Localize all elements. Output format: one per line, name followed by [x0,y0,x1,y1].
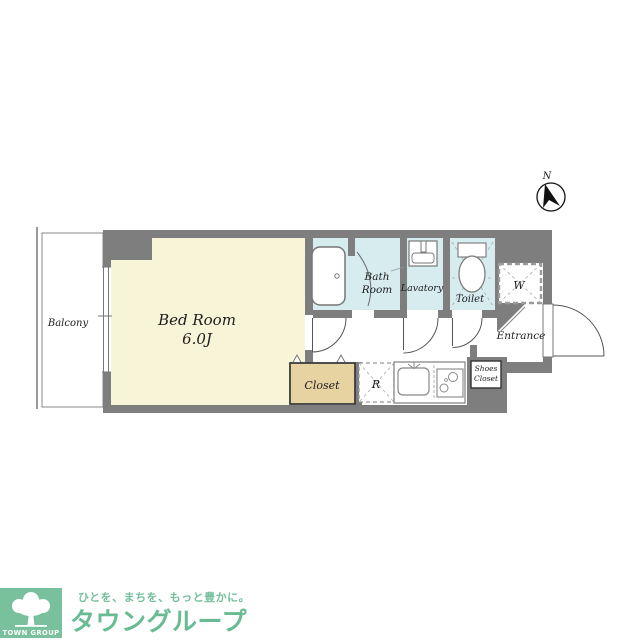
lavatory-label: Lavatory [400,283,444,294]
wall-segment [348,238,355,256]
logo-group-name: TOWN GROUP [2,629,59,637]
wall-segment [103,230,543,238]
wall-segment [443,238,450,318]
washer-space-label: W [513,279,526,292]
floorplan-page: Balcony [0,0,640,640]
wall-segment [543,230,552,307]
shoes-closet-label-2: Closet [474,374,499,383]
shoes-closet-label-1: Shoes [475,364,498,373]
wall-segment [470,345,477,358]
toilet-label: Toilet [456,294,485,305]
refrigerator-label: R [371,378,380,391]
north-compass: N [537,171,565,211]
balcony-label: Balcony [47,318,89,329]
north-arrow-icon [543,184,560,208]
floor-plan: Balcony [0,0,640,640]
wall-segment [495,230,551,263]
kitchen-sink-icon [398,368,429,395]
bathroom-label-2: Room [361,284,393,296]
wall-segment [374,310,403,318]
logo-brand: タウングループ [70,607,248,636]
closet-label: Closet [304,379,340,392]
sink-icon [409,241,437,266]
town-group-logo: TOWN GROUP ひとを、まちを、もっと豊かに。 タウングループ [0,588,250,638]
bedroom-size-label: 6.0J [182,330,213,348]
bathtub-icon [312,247,345,305]
bathroom-label-1: Bath [364,271,390,283]
wall-segment [495,362,552,373]
entrance-label: Entrance [496,330,546,342]
wall-segment [400,238,407,318]
bedroom-label: Bed Room [157,311,236,329]
wall-segment [103,238,111,268]
balcony: Balcony [37,227,103,409]
north-label: N [542,171,553,182]
logo-tagline: ひとを、まちを、もっと豊かに。 [78,590,250,604]
wall-segment [313,310,352,318]
wall-segment [103,405,467,413]
